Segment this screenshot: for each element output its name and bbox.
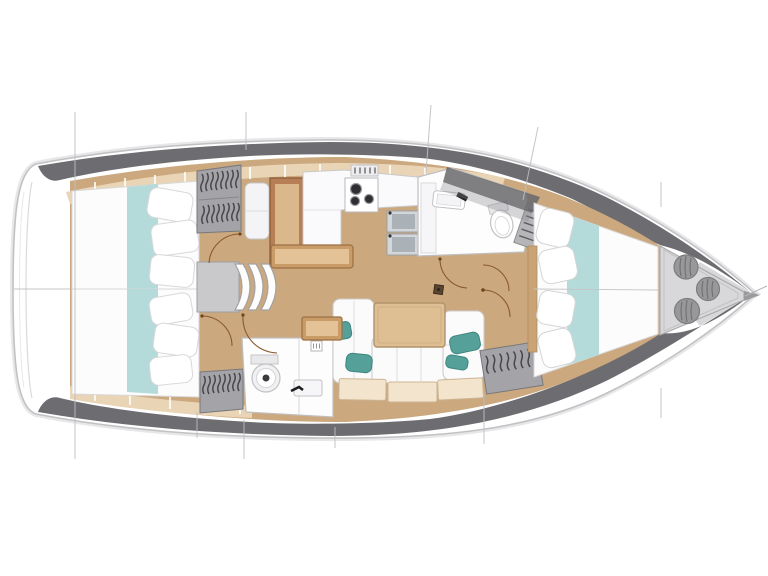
- aft-heads: [242, 338, 333, 417]
- saloon-table: [374, 303, 445, 347]
- mast-foot: [433, 284, 443, 294]
- fender: [697, 278, 720, 301]
- yacht-floorplan: [0, 0, 768, 576]
- wardrobe-aft-bottom: [200, 369, 243, 413]
- washbasin-aft: [291, 380, 322, 396]
- fender: [674, 255, 698, 279]
- wardrobe-aft-top: [197, 165, 241, 233]
- floorplan-svg: [0, 0, 768, 576]
- fender: [675, 299, 700, 324]
- wooden-chest: [302, 317, 342, 340]
- galley-lower-cabinet: [271, 245, 353, 268]
- toilet-aft: [251, 355, 280, 392]
- pillows-aft-bottom: [148, 292, 200, 387]
- vberth-headboard: [528, 246, 537, 352]
- companionway-landing: [197, 262, 239, 312]
- pillows-aft-top: [146, 186, 200, 288]
